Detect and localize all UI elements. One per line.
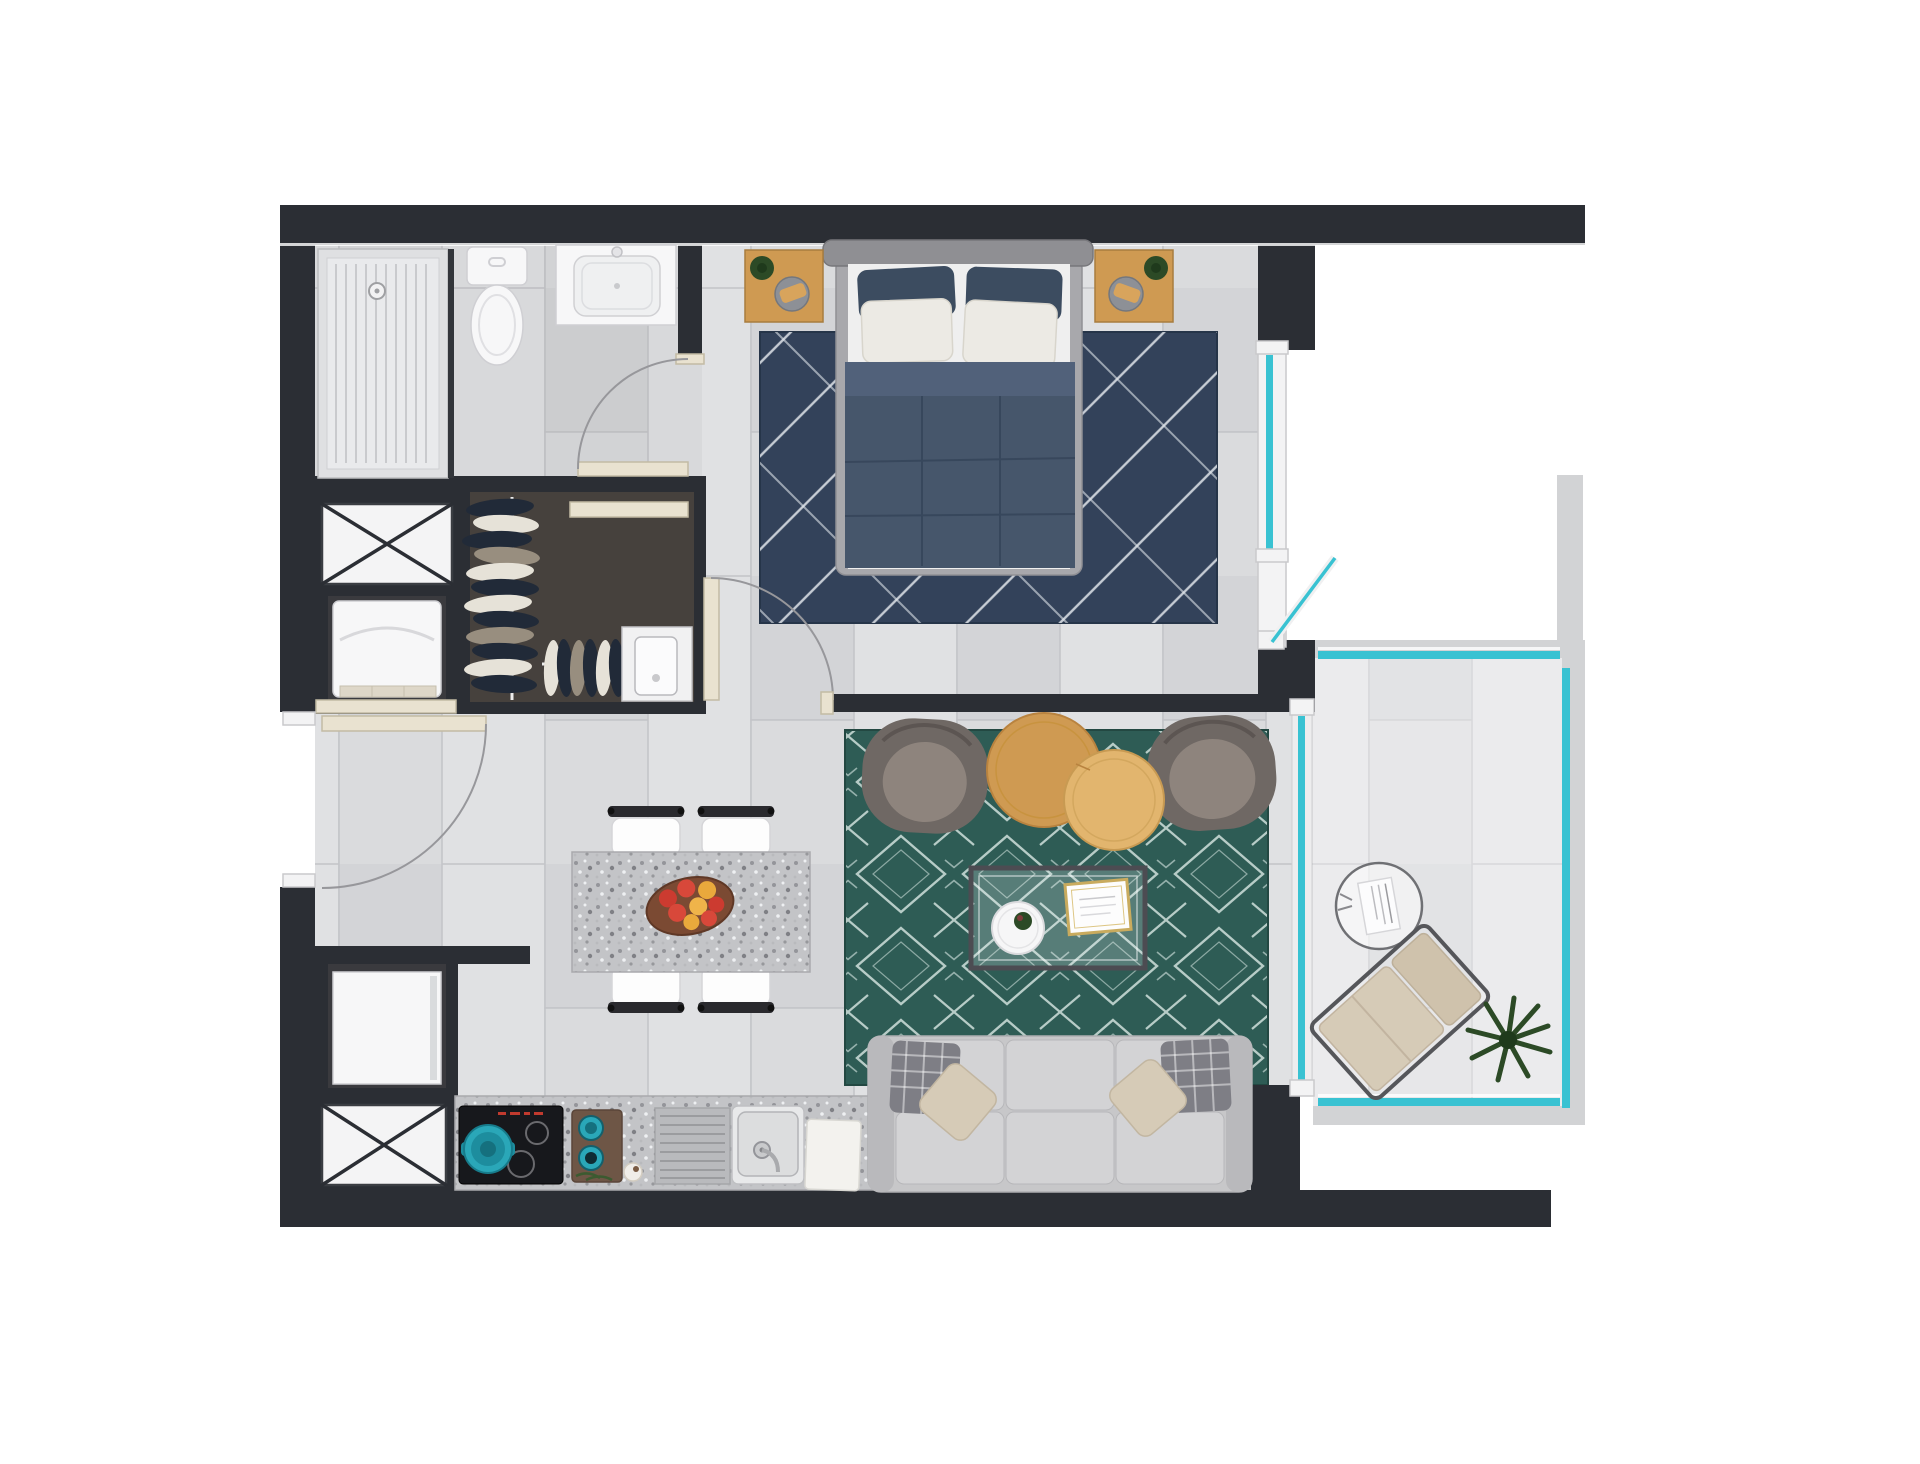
cooktop [459, 1106, 563, 1184]
wall-bottom [280, 1190, 1551, 1227]
pillow-white-right [962, 300, 1057, 369]
wall-bedroom-living [827, 694, 1313, 712]
bathroom-door-leaf [578, 462, 688, 476]
duvet-fold [845, 362, 1075, 396]
tray-plant [1014, 912, 1032, 930]
entrance-jamb-bottom [283, 874, 315, 887]
sofa-armrest-left [868, 1036, 894, 1192]
sink [732, 1106, 804, 1184]
entrance-door-leaf [322, 716, 486, 731]
refrigerator [333, 972, 441, 1084]
floor-plan-svg [0, 0, 1920, 1464]
drainboard [655, 1108, 730, 1184]
sofa-armrest-right [1226, 1036, 1252, 1192]
lower-crossed-box [322, 1105, 446, 1185]
entrance-jamb-top [283, 712, 315, 725]
slider-glass [1298, 716, 1305, 1080]
dining-chair-top-right [698, 806, 775, 856]
upper-crossed-box [322, 504, 452, 584]
window-glass [1266, 355, 1273, 555]
washing-machine [333, 601, 441, 697]
bedroom-door-leaf [704, 578, 719, 700]
armchair-right [1144, 712, 1280, 835]
dining-chair-top-left [608, 806, 685, 856]
railing-bottom [1318, 1098, 1560, 1106]
shower-glass-divider [448, 249, 454, 478]
sofa [868, 1036, 1252, 1192]
wall-left-lower [280, 887, 315, 1227]
washing-machine-niche [316, 596, 456, 713]
railing-right [1562, 668, 1570, 1108]
vanity-sink [556, 245, 676, 325]
floor-plan-stage [0, 0, 1920, 1464]
armchair-left [859, 716, 991, 836]
balcony-slab-bottom [1313, 1106, 1585, 1125]
toilet [467, 247, 527, 365]
garlic [624, 1163, 642, 1181]
dining-chair-bottom-right [698, 966, 775, 1013]
balcony-sliding-door [1290, 699, 1314, 1096]
wall-end-cap [821, 692, 833, 714]
board-with-pots [572, 1110, 622, 1182]
closet-cabinet [622, 627, 692, 701]
wall-bath-bedroom [678, 245, 702, 360]
shower [318, 249, 454, 478]
faucet [612, 247, 622, 257]
nightstand-left [745, 250, 823, 322]
gold-frame-tray [1065, 879, 1131, 934]
bed [823, 240, 1093, 575]
nightstand-right [1095, 250, 1173, 322]
kitchen-counter [455, 1096, 905, 1191]
walk-in-closet [462, 492, 694, 702]
wall-left-upper [280, 205, 315, 712]
refrigerator-niche [328, 964, 446, 1088]
niche-threshold [316, 700, 456, 713]
railing-top [1318, 651, 1560, 659]
dining-chair-bottom-left [608, 966, 685, 1013]
closet-sliding-track [570, 502, 688, 517]
exterior-wall-strip [1557, 475, 1583, 645]
glass-coffee-table [971, 868, 1145, 968]
wall-right-pillar-top [1258, 245, 1315, 350]
wall-top [280, 205, 1585, 245]
pillow-white-left [861, 298, 953, 363]
cutting-board [805, 1119, 861, 1191]
headboard [823, 240, 1093, 266]
